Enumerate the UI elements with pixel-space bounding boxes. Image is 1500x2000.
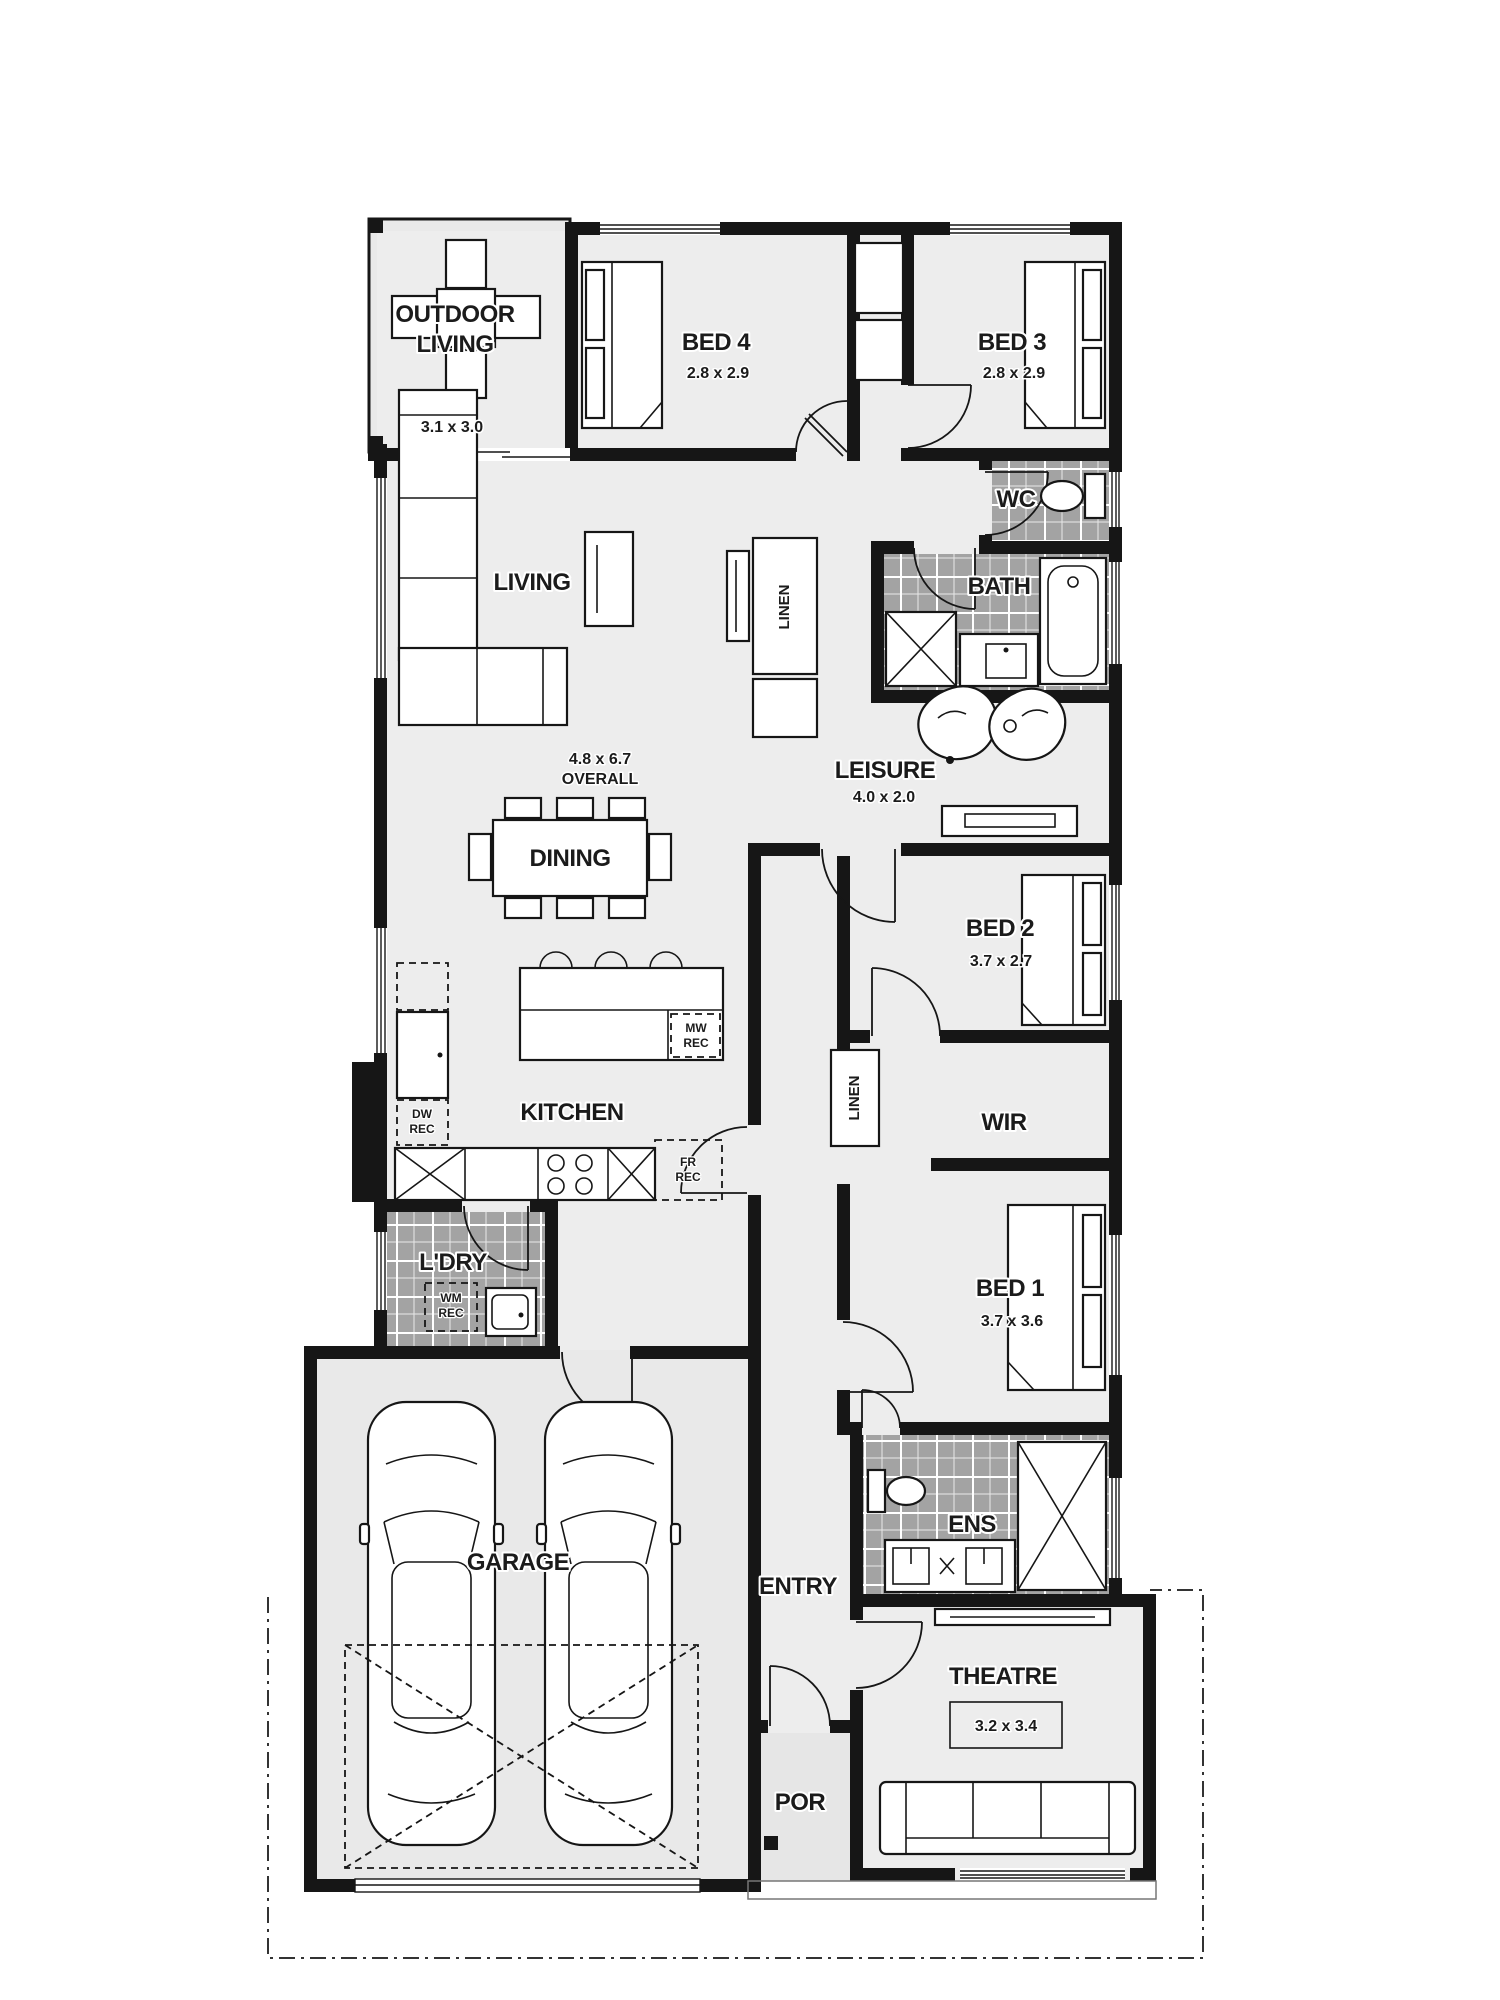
car-icon-2 xyxy=(537,1402,680,1845)
living-label: LIVING xyxy=(493,569,570,596)
window-theatre xyxy=(960,1868,1125,1881)
floor-plan-page: OUTDOOR LIVING 3.1 x 3.0 BED 4 2.8 x 2.9… xyxy=(0,0,1500,2000)
ens-shower-icon xyxy=(1018,1442,1106,1590)
car-icon xyxy=(360,1402,503,1845)
window-bed3 xyxy=(950,222,1070,235)
bed4-label: BED 4 xyxy=(682,329,751,356)
window-wc xyxy=(1109,472,1122,527)
media-unit-theatre-icon xyxy=(935,1609,1110,1625)
bath-label: BATH xyxy=(968,573,1031,600)
dw-rec-label-2: REC xyxy=(409,1122,435,1136)
ldry-label: L'DRY xyxy=(419,1249,487,1276)
mw-rec-label-1: MW xyxy=(685,1021,707,1035)
bed2-icon xyxy=(1022,875,1105,1025)
bath-shower-icon xyxy=(886,612,956,686)
porch-label: POR xyxy=(775,1789,826,1816)
theatre-sofa-icon xyxy=(880,1782,1135,1854)
wc-label: WC xyxy=(997,486,1036,513)
theatre-dims: 3.2 x 3.4 xyxy=(975,1718,1037,1735)
dw-rec-label-1: DW xyxy=(412,1107,433,1121)
theatre-label: THEATRE xyxy=(949,1663,1058,1690)
ens-vanity-icon xyxy=(885,1540,1015,1592)
ens-label: ENS xyxy=(948,1511,996,1538)
linen-hall-label: LINEN xyxy=(776,585,793,630)
bed2-dims: 3.7 x 2.7 xyxy=(970,953,1032,970)
tv-unit-hall-icon xyxy=(727,551,749,641)
garage-door xyxy=(355,1879,700,1892)
hall-closet-top xyxy=(855,243,903,313)
outdoor-living-dims: 3.1 x 3.0 xyxy=(421,419,483,436)
bed4-dims: 2.8 x 2.9 xyxy=(687,365,749,382)
outdoor-living-label-2: LIVING xyxy=(416,331,493,358)
fr-rec-label-2: REC xyxy=(675,1170,701,1184)
floor-plan: OUTDOOR LIVING 3.1 x 3.0 BED 4 2.8 x 2.9… xyxy=(0,0,1500,2000)
wir-label: WIR xyxy=(981,1109,1026,1136)
bed1-label: BED 1 xyxy=(976,1275,1044,1302)
bed3-label: BED 3 xyxy=(978,329,1046,356)
media-unit-leisure-icon xyxy=(942,806,1077,836)
bed2-label: BED 2 xyxy=(966,915,1034,942)
window-ldry xyxy=(374,1232,387,1310)
garage-label: GARAGE xyxy=(467,1549,570,1576)
leisure-label: LEISURE xyxy=(835,757,936,784)
tv-unit-living-icon xyxy=(585,532,633,626)
outdoor-living-label: OUTDOOR xyxy=(395,301,514,328)
kitchen-label: KITCHEN xyxy=(520,1099,623,1126)
bathtub-icon xyxy=(1040,558,1106,684)
porch-slab-edge xyxy=(748,1881,1156,1899)
window-ens xyxy=(1109,1478,1122,1578)
fr-rec-label-1: FR xyxy=(680,1155,696,1169)
bed1-dims: 3.7 x 3.6 xyxy=(981,1313,1043,1330)
wm-rec-label-2: REC xyxy=(438,1306,464,1320)
window-bed4 xyxy=(600,222,720,235)
overall-dims-line1: 4.8 x 6.7 xyxy=(569,751,631,768)
overall-dims-line2: OVERALL xyxy=(562,771,639,788)
entry-label: ENTRY xyxy=(759,1573,837,1600)
wm-rec-label-1: WM xyxy=(440,1291,461,1305)
hall-niche xyxy=(753,679,817,737)
bath-vanity-icon xyxy=(960,634,1038,686)
mw-rec-label-2: REC xyxy=(683,1036,709,1050)
bed4-icon xyxy=(582,262,662,428)
window-bath xyxy=(1109,562,1122,664)
leisure-dims: 4.0 x 2.0 xyxy=(853,789,915,806)
dining-label: DINING xyxy=(530,845,611,872)
bed3-dims: 2.8 x 2.9 xyxy=(983,365,1045,382)
linen-lower-label: LINEN xyxy=(846,1076,863,1121)
window-bed1 xyxy=(1109,1235,1122,1375)
window-bed2 xyxy=(1109,885,1122,1000)
laundry-tub-icon xyxy=(486,1288,536,1336)
hall-closet-bottom xyxy=(855,320,903,380)
window-kitchen xyxy=(374,928,387,1053)
window-living xyxy=(374,478,387,678)
